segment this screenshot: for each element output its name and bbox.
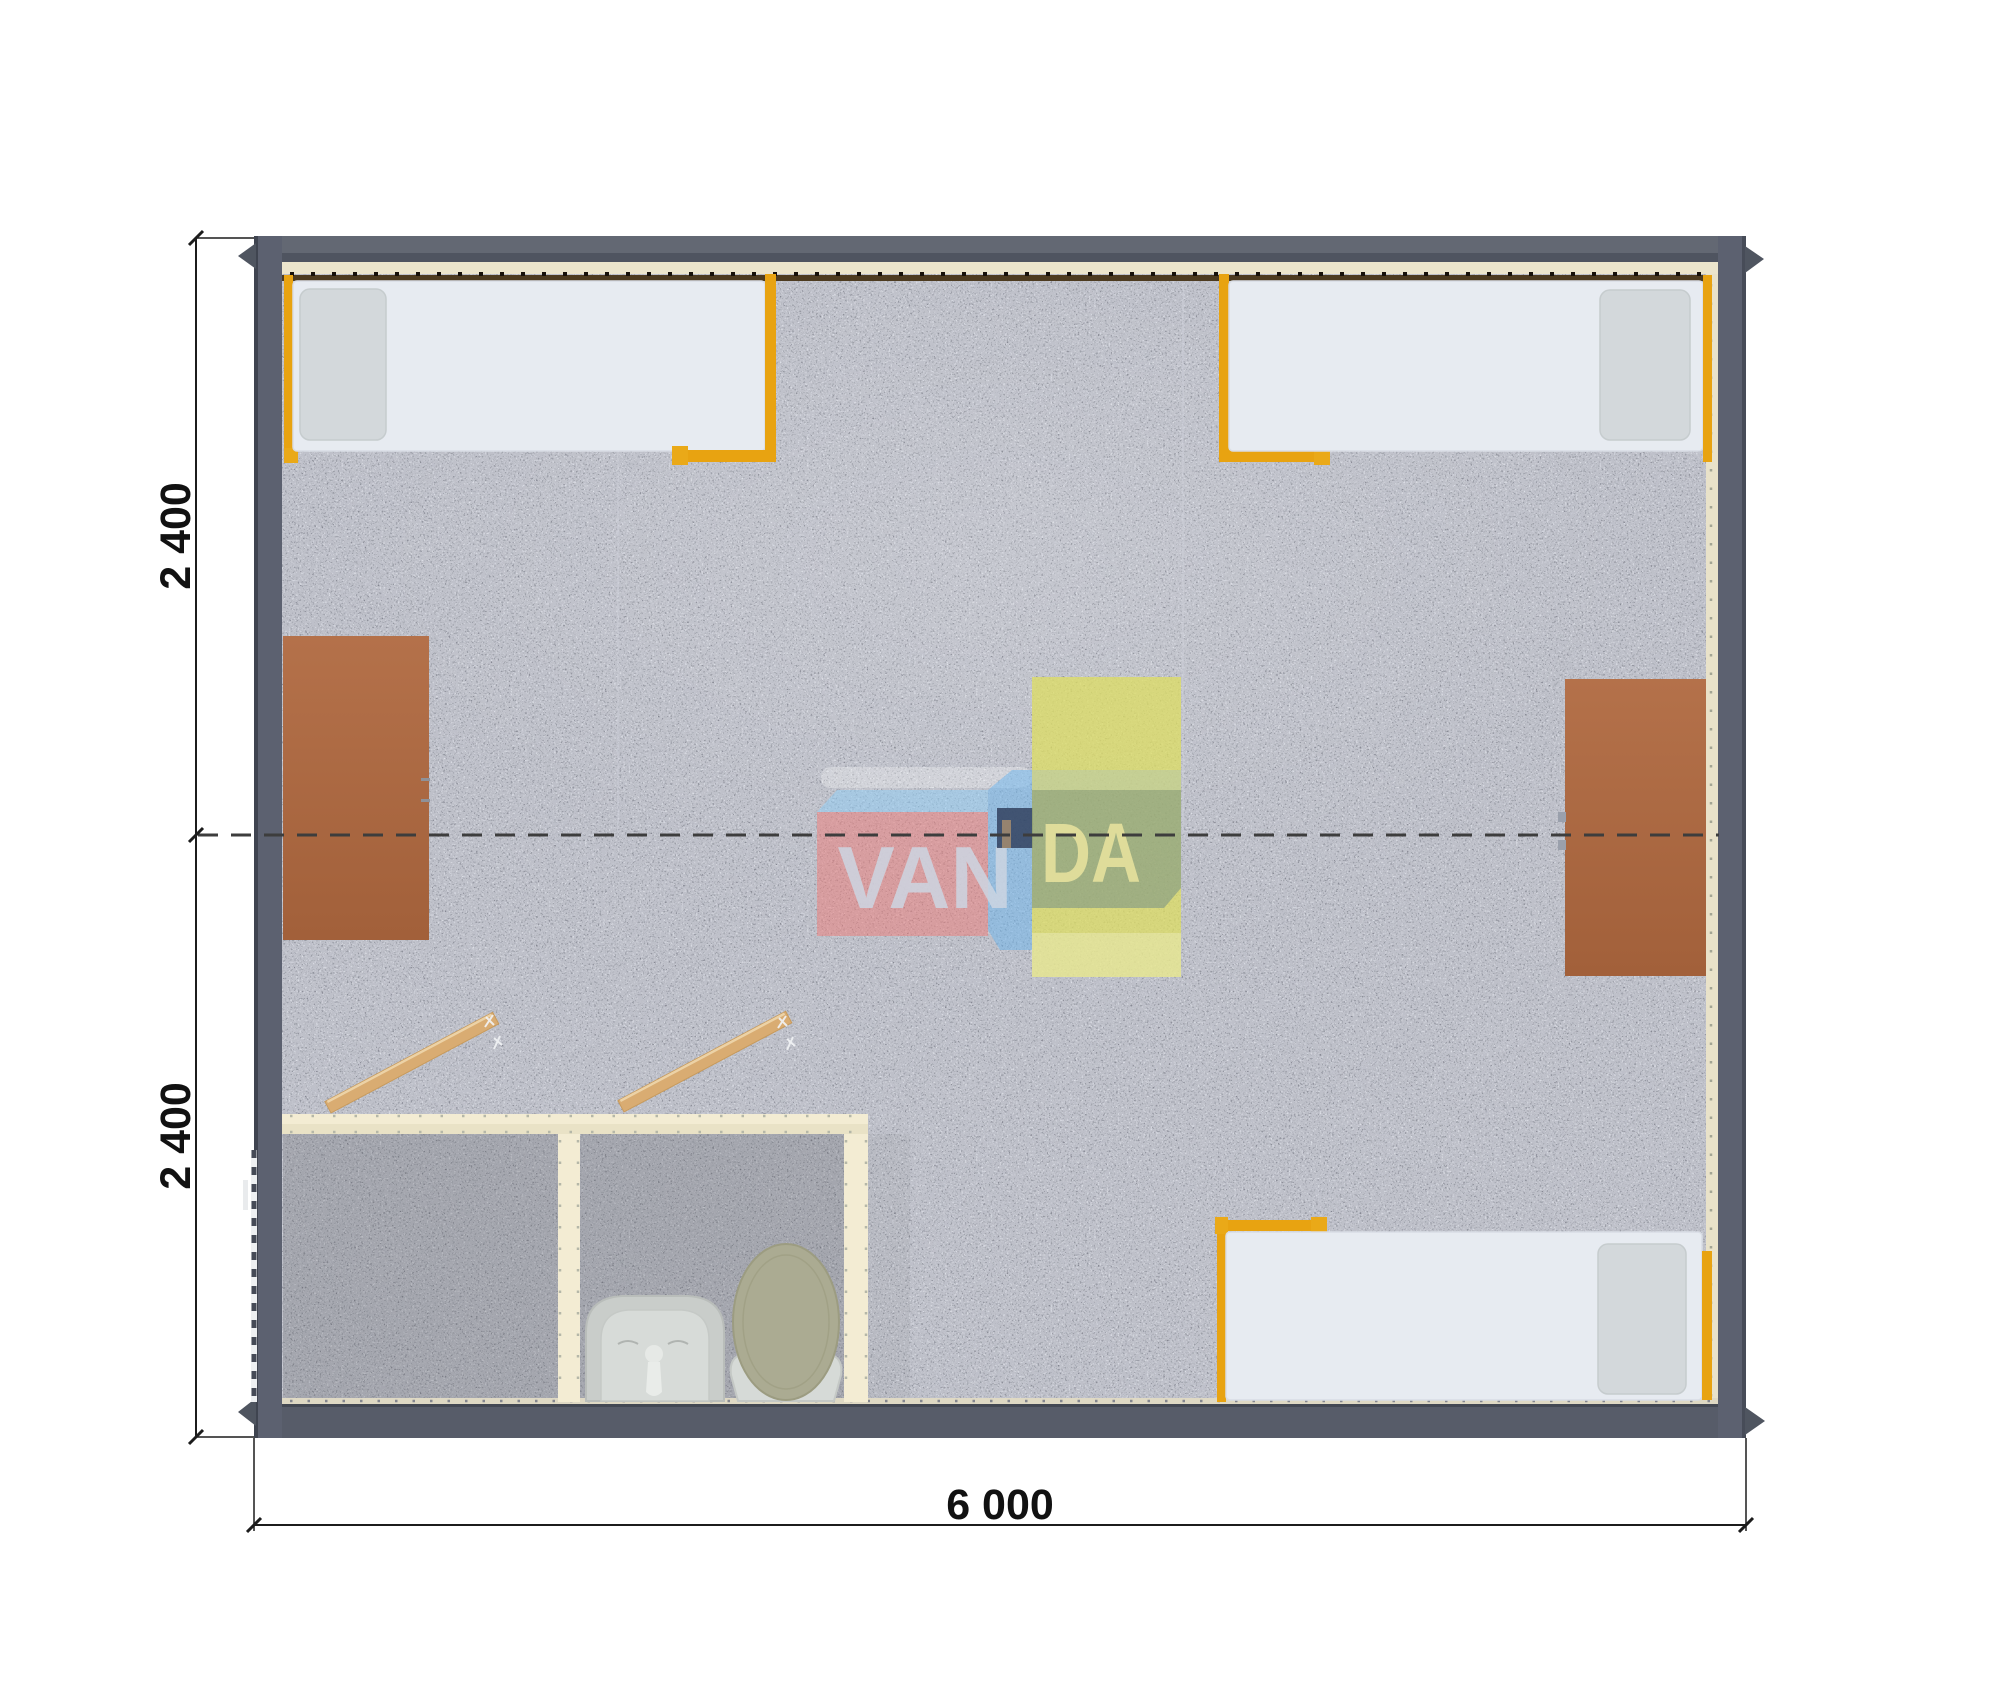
svg-text:VAN: VAN <box>838 828 1013 927</box>
svg-text:2 400: 2 400 <box>152 1082 200 1190</box>
svg-text:6 000: 6 000 <box>946 1481 1054 1529</box>
svg-text:DA: DA <box>1041 806 1141 900</box>
svg-text:2 400: 2 400 <box>152 482 200 590</box>
